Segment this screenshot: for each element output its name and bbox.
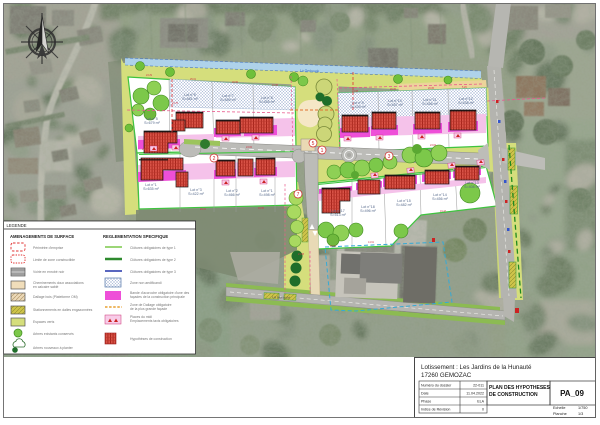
svg-text:24.75: 24.75 — [172, 102, 179, 105]
svg-text:S=496 m²: S=496 m² — [360, 209, 376, 213]
svg-text:Clôtures obligatoires de type: Clôtures obligatoires de type 3 — [130, 270, 176, 274]
svg-text:23.84: 23.84 — [246, 146, 253, 149]
svg-text:Limite de zone constructible: Limite de zone constructible — [33, 258, 75, 262]
svg-text:Phase: Phase — [421, 400, 431, 404]
svg-text:19.01: 19.01 — [330, 245, 337, 248]
svg-text:Lotissement : Les Jardins de l: Lotissement : Les Jardins de la Hunauté — [421, 364, 532, 371]
svg-text:Espaces verts: Espaces verts — [33, 320, 55, 324]
svg-text:Echelle: Echelle — [553, 406, 565, 410]
svg-text:14.61: 14.61 — [368, 241, 375, 244]
svg-text:S=635 m²: S=635 m² — [143, 187, 159, 191]
svg-text:3: 3 — [388, 154, 391, 160]
svg-text:S=482 m²: S=482 m² — [396, 203, 412, 207]
svg-text:21.01: 21.01 — [142, 148, 149, 151]
svg-text:S=438 m²: S=438 m² — [458, 101, 474, 105]
svg-text:1/750: 1/750 — [578, 406, 588, 410]
svg-text:PA_09: PA_09 — [560, 389, 584, 398]
svg-text:Planche: Planche — [553, 412, 567, 416]
svg-text:17260 GEMOZAC: 17260 GEMOZAC — [421, 372, 472, 379]
svg-text:Clôtures obligatoires de type: Clôtures obligatoires de type 2 — [130, 258, 176, 262]
svg-text:S=457 m²: S=457 m² — [387, 103, 403, 107]
svg-text:20.05: 20.05 — [390, 88, 397, 91]
svg-text:21.95: 21.95 — [272, 84, 279, 87]
svg-text:Indice de Révision: Indice de Révision — [421, 408, 450, 412]
svg-text:S=456 m²: S=456 m² — [432, 197, 448, 201]
svg-text:S=513 m²: S=513 m² — [330, 213, 346, 217]
svg-text:S=439 m²: S=439 m² — [350, 105, 366, 109]
svg-text:Dallage bois (Plateforme OM): Dallage bois (Plateforme OM) — [33, 295, 78, 299]
svg-text:Stationnements en dalles engaz: Stationnements en dalles engazonnées — [33, 308, 93, 312]
svg-text:S=466 m²: S=466 m² — [224, 193, 240, 197]
svg-text:ELA: ELA — [477, 400, 484, 404]
svg-text:Clôtures obligatoires de type: Clôtures obligatoires de type 1 — [130, 246, 176, 250]
svg-text:1/3: 1/3 — [578, 412, 583, 416]
svg-text:Emplacements taxis obligatoire: Emplacements taxis obligatoires — [130, 319, 179, 323]
svg-text:façades de la construction pri: façades de la construction principale — [130, 295, 185, 299]
svg-text:Arbres nouveaux à planter: Arbres nouveaux à planter — [33, 346, 74, 350]
svg-text:Périmètre d'emprise: Périmètre d'emprise — [33, 246, 63, 250]
svg-text:5: 5 — [312, 141, 315, 147]
svg-text:Date: Date — [421, 392, 429, 396]
svg-text:7: 7 — [297, 192, 300, 198]
svg-text:S=456 m²: S=456 m² — [422, 102, 438, 106]
svg-text:16.65: 16.65 — [258, 207, 265, 210]
svg-text:22-011: 22-011 — [473, 384, 484, 388]
svg-text:21.08: 21.08 — [298, 253, 305, 256]
svg-text:Voirie en enrobé noir: Voirie en enrobé noir — [33, 270, 65, 274]
svg-text:S=498 m²: S=498 m² — [259, 193, 275, 197]
svg-text:La Hunauté: La Hunauté — [272, 295, 290, 300]
svg-text:19.43: 19.43 — [440, 210, 447, 213]
svg-text:S=481 m²: S=481 m² — [182, 97, 198, 101]
svg-text:Zone non aedificandi: Zone non aedificandi — [130, 281, 162, 285]
svg-text:REGLEMENTATION SPECIFIQUE: REGLEMENTATION SPECIFIQUE — [103, 234, 168, 239]
svg-text:LEGENDE: LEGENDE — [7, 223, 27, 228]
svg-text:1: 1 — [321, 148, 324, 154]
svg-text:AMENAGEMENTS DE SURFACE: AMENAGEMENTS DE SURFACE — [10, 234, 74, 239]
svg-text:5.29: 5.29 — [462, 86, 467, 89]
svg-text:PLAN DES HYPOTHESES: PLAN DES HYPOTHESES — [489, 385, 551, 391]
svg-text:S=455 m²: S=455 m² — [259, 100, 275, 104]
svg-text:en calcaire sablé: en calcaire sablé — [33, 285, 59, 289]
svg-text:2: 2 — [213, 156, 216, 162]
svg-text:0: 0 — [482, 408, 484, 412]
svg-text:23.29: 23.29 — [146, 74, 153, 77]
svg-text:Arbres existants conservés: Arbres existants conservés — [33, 332, 74, 336]
svg-text:20.01: 20.01 — [200, 208, 207, 211]
svg-text:20.95: 20.95 — [232, 81, 239, 84]
svg-text:DE CONSTRUCTION: DE CONSTRUCTION — [489, 392, 538, 398]
svg-text:La Gerbaude: La Gerbaude — [300, 69, 320, 74]
svg-text:23.84: 23.84 — [430, 144, 437, 147]
svg-text:Hypothèses de construction: Hypothèses de construction — [130, 337, 172, 341]
svg-text:25.01: 25.01 — [190, 78, 197, 81]
svg-text:S=459 m²: S=459 m² — [220, 98, 236, 102]
svg-text:Numéro du dossier: Numéro du dossier — [421, 384, 452, 388]
svg-text:S=422 m²: S=422 m² — [188, 192, 204, 196]
svg-text:23.08: 23.08 — [352, 90, 359, 93]
svg-text:20.05: 20.05 — [428, 87, 435, 90]
svg-text:11.04.2022: 11.04.2022 — [466, 392, 484, 396]
svg-text:de la plus grande façade: de la plus grande façade — [130, 307, 167, 311]
svg-text:S=408 m²: S=408 m² — [464, 185, 480, 189]
svg-text:S=679 m²: S=679 m² — [144, 121, 160, 125]
